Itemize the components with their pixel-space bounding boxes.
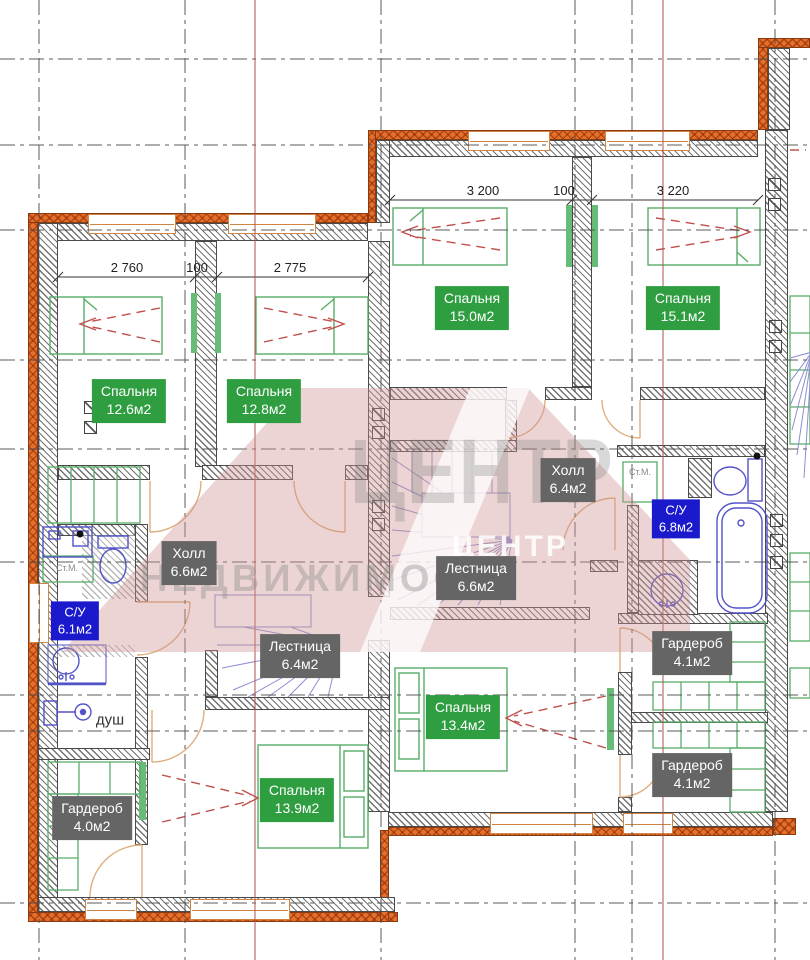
- room-area: 6.1м2: [58, 621, 92, 638]
- room-name: Спальня: [444, 290, 500, 308]
- room-area: 15.0м2: [444, 308, 500, 326]
- washing-machine-label: Ст.М.: [629, 467, 651, 477]
- room-name: Лестница: [269, 638, 331, 656]
- room-label-hall-6-6: Холл6.6м2: [162, 541, 217, 585]
- room-name: Спальня: [236, 383, 292, 401]
- washing-machine-label: Ст.М.: [56, 563, 78, 573]
- room-label-bedroom-12-8: Спальня12.8м2: [227, 379, 301, 423]
- room-name: С/У: [58, 604, 92, 621]
- room-area: 4.0м2: [61, 818, 123, 836]
- room-name: Спальня: [435, 699, 491, 717]
- floor-plan-canvas: ЦЕНТР ЦЕНТР НЕДВИЖИМОСТИ Спальня12.6м2 С…: [0, 0, 810, 960]
- room-name: Гардероб: [661, 635, 723, 653]
- room-label-wardrobe-4-1-lower: Гардероб4.1м2: [652, 753, 732, 797]
- toilet-icon: [714, 453, 762, 502]
- shower-label: душ: [96, 712, 124, 729]
- room-area: 6.6м2: [171, 563, 208, 581]
- room-area: 13.9м2: [269, 800, 325, 818]
- sink-icon: [48, 645, 106, 684]
- bathtub-icon: [717, 503, 767, 613]
- room-name: Гардероб: [61, 800, 123, 818]
- room-area: 6.6м2: [445, 578, 507, 596]
- room-label-bedroom-12-6: Спальня12.6м2: [92, 379, 166, 423]
- room-name: Гардероб: [661, 757, 723, 775]
- room-label-bedroom-13-4: Спальня13.4м2: [426, 695, 500, 739]
- room-label-wc-6-8: С/У6.8м2: [652, 499, 700, 538]
- room-name: Холл: [550, 462, 587, 480]
- room-name: Спальня: [655, 290, 711, 308]
- shower-icon: [44, 701, 91, 725]
- room-area: 6.4м2: [550, 480, 587, 498]
- dimension-text: 2 760: [111, 260, 144, 275]
- room-label-wardrobe-4-0: Гардероб4.0м2: [52, 796, 132, 840]
- room-name: Спальня: [269, 782, 325, 800]
- room-area: 12.8м2: [236, 401, 292, 419]
- room-label-wardrobe-4-1-upper: Гардероб4.1м2: [652, 631, 732, 675]
- room-label-hall-6-4: Холл6.4м2: [541, 458, 596, 502]
- dimension-text: 100: [553, 183, 575, 198]
- room-name: Лестница: [445, 560, 507, 578]
- room-label-bedroom-15-1: Спальня15.1м2: [646, 286, 720, 330]
- dimension-text: 3 200: [467, 183, 500, 198]
- room-area: 4.1м2: [661, 653, 723, 671]
- room-name: С/У: [659, 502, 693, 519]
- room-label-bedroom-15-0: Спальня15.0м2: [435, 286, 509, 330]
- washing-machine-icon: [43, 527, 92, 557]
- room-label-stairs-6-4: Лестница6.4м2: [260, 634, 340, 678]
- dimension-text: 3 220: [657, 183, 690, 198]
- room-area: 13.4м2: [435, 717, 491, 735]
- dimension-text: 100: [186, 260, 208, 275]
- room-area: 4.1м2: [661, 775, 723, 793]
- toilet-icon: [98, 536, 128, 583]
- room-label-bedroom-13-9: Спальня13.9м2: [260, 778, 334, 822]
- room-name: Холл: [171, 545, 208, 563]
- room-label-stairs-6-6: Лестница6.6м2: [436, 556, 516, 600]
- room-label-wc-6-1: С/У6.1м2: [51, 601, 99, 640]
- staircase-neighbor: [790, 352, 810, 478]
- room-area: 6.4м2: [269, 656, 331, 674]
- sink-icon: [651, 574, 683, 608]
- room-area: 15.1м2: [655, 308, 711, 326]
- dimension-text: 2 775: [274, 260, 307, 275]
- bathroom-fixtures: [43, 453, 767, 726]
- room-area: 6.8м2: [659, 519, 693, 536]
- room-name: Спальня: [101, 383, 157, 401]
- room-area: 12.6м2: [101, 401, 157, 419]
